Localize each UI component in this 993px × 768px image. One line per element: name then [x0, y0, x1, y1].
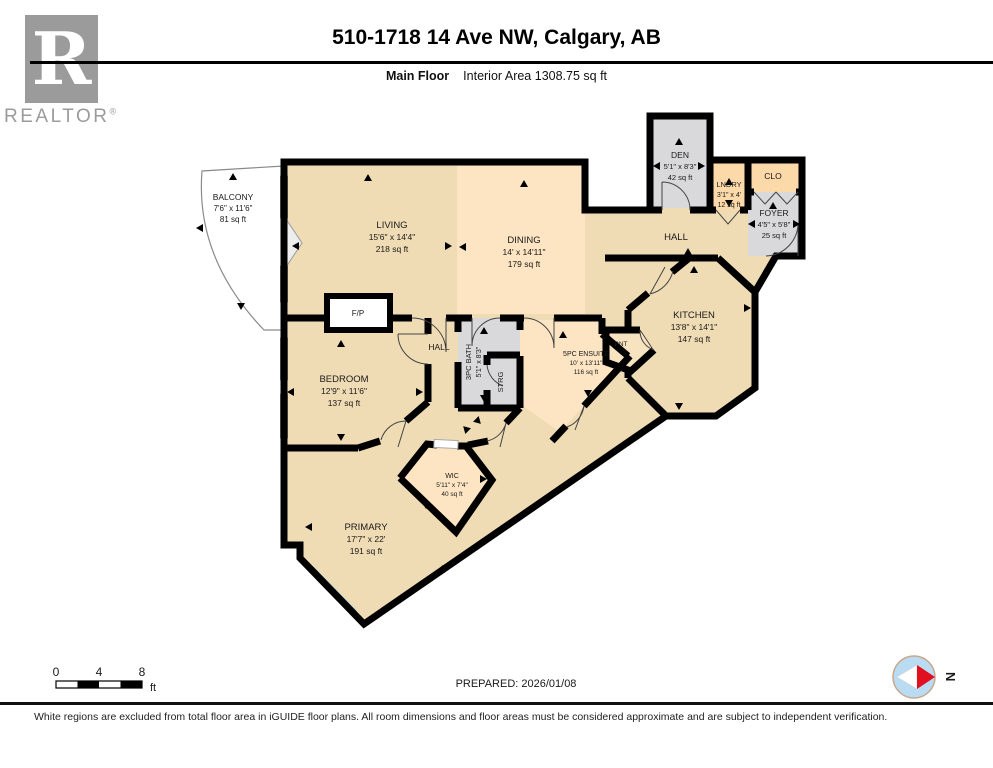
svg-text:15'6" x 14'4": 15'6" x 14'4"	[369, 232, 416, 242]
label-living: LIVING	[376, 220, 407, 231]
svg-text:13'8" x 14'1": 13'8" x 14'1"	[671, 322, 718, 332]
label-wic: WIC	[445, 473, 459, 480]
svg-text:12'9" x 11'6": 12'9" x 11'6"	[321, 386, 367, 396]
floorplan-drawing: BALCONY 7'6" x 11'6" 81 sq ft LIVING 15'…	[0, 0, 993, 768]
svg-text:147 sq ft: 147 sq ft	[678, 334, 711, 344]
svg-text:14' x 14'11": 14' x 14'11"	[503, 247, 546, 257]
svg-text:179 sq ft: 179 sq ft	[508, 259, 541, 269]
label-fp: F/P	[352, 309, 364, 318]
svg-text:40 sq ft: 40 sq ft	[441, 491, 463, 498]
svg-text:137 sq ft: 137 sq ft	[328, 398, 361, 408]
svg-text:116 sq ft: 116 sq ft	[574, 369, 599, 376]
svg-text:191 sq ft: 191 sq ft	[350, 546, 383, 556]
svg-text:4'5" x 5'8": 4'5" x 5'8"	[758, 220, 791, 229]
label-strg: STRG	[496, 371, 505, 392]
svg-text:10' x 13'11": 10' x 13'11"	[570, 360, 604, 367]
svg-text:17'7" x 22': 17'7" x 22'	[347, 534, 386, 544]
label-pnt: PNT	[615, 341, 628, 348]
label-ensuite: 5PC ENSUITE	[563, 351, 609, 358]
label-balcony: BALCONY	[213, 192, 254, 202]
label-bath: 3PC BATH	[464, 344, 473, 380]
scale-unit: ft	[150, 682, 156, 694]
label-bedroom: BEDROOM	[319, 374, 368, 385]
svg-text:8: 8	[139, 665, 146, 679]
compass-icon: N	[893, 656, 958, 698]
svg-text:5'11" x 7'4": 5'11" x 7'4"	[436, 482, 468, 489]
label-dining: DINING	[507, 235, 540, 246]
compass-north-label: N	[943, 672, 958, 681]
label-kitchen: KITCHEN	[673, 310, 715, 321]
svg-text:5'1" x 8'3": 5'1" x 8'3"	[476, 346, 483, 377]
svg-text:42 sq ft: 42 sq ft	[668, 173, 694, 182]
label-den: DEN	[671, 150, 689, 160]
label-clo: CLO	[764, 171, 782, 181]
prepared-date: PREPARED: 2026/01/08	[456, 678, 577, 690]
label-hall2: HALL	[428, 342, 450, 352]
scale-bar: 0 4 8 ft	[53, 665, 156, 694]
label-primary: PRIMARY	[344, 522, 388, 533]
svg-text:81 sq ft: 81 sq ft	[220, 215, 247, 224]
label-hall: HALL	[664, 232, 688, 243]
footer-disclaimer: White regions are excluded from total fl…	[34, 711, 964, 723]
svg-text:218 sq ft: 218 sq ft	[376, 244, 409, 254]
svg-text:25 sq ft: 25 sq ft	[762, 231, 788, 240]
svg-text:7'6" x 11'6": 7'6" x 11'6"	[214, 204, 253, 213]
svg-text:3'1" x 4': 3'1" x 4'	[717, 192, 741, 199]
svg-text:0: 0	[53, 665, 60, 679]
svg-text:5'1" x 8'3": 5'1" x 8'3"	[664, 162, 697, 171]
wic-window	[434, 439, 458, 448]
label-lndry: LNDRY	[716, 180, 741, 189]
footer-divider	[0, 702, 993, 705]
label-foyer: FOYER	[759, 208, 788, 218]
floorplan-page: R REALTOR® 510-1718 14 Ave NW, Calgary, …	[0, 0, 993, 768]
svg-text:4: 4	[96, 665, 103, 679]
svg-text:12 sq ft: 12 sq ft	[718, 202, 741, 209]
